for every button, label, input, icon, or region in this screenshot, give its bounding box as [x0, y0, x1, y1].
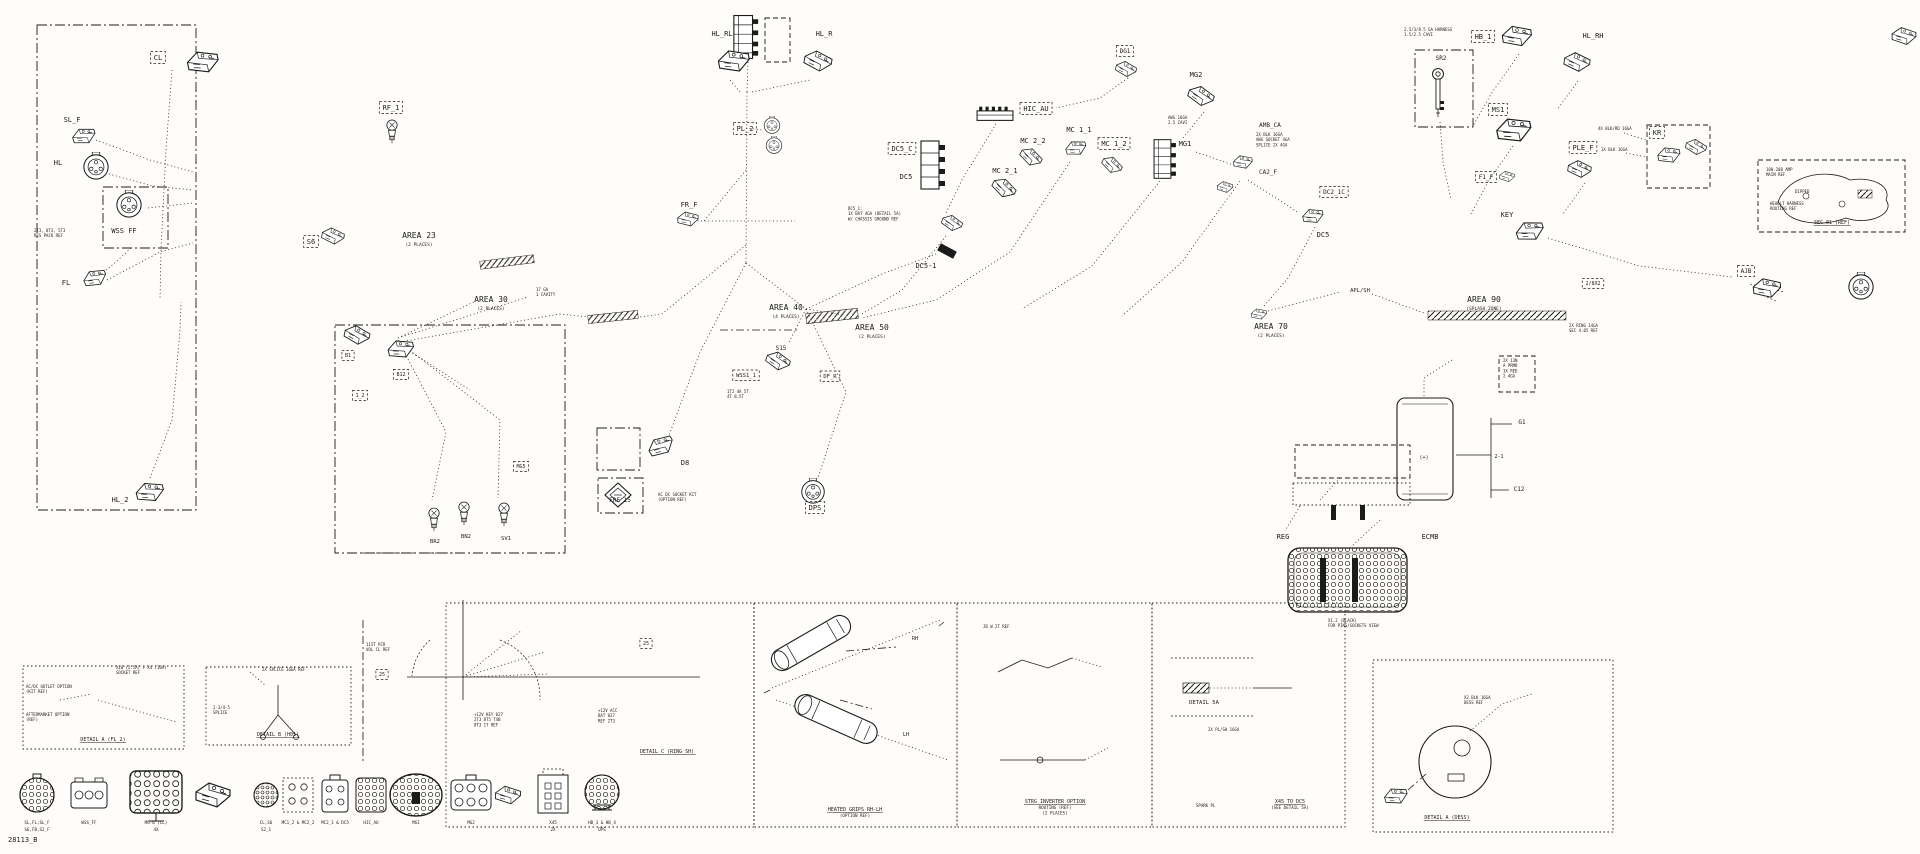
note-line: (KIT REF) [26, 689, 48, 694]
component-label: DF_R [823, 374, 837, 380]
note-line: SPLICE 2X 4GA [1256, 142, 1288, 147]
honeycomb-slot [1320, 558, 1326, 602]
bottom-connector-label: MG-6 (CL) [145, 820, 168, 825]
component-label: DETAIL 5A [1189, 700, 1219, 706]
component-label: KR [1653, 129, 1662, 137]
area-label: AREA 90 [1467, 295, 1501, 304]
diagram-svg: CLSL_FHLWSS FFFLHL_2RF_1S6HL_RLHL_RPL_2F… [0, 0, 1920, 854]
component-label: AJB [1741, 268, 1752, 275]
note-line: VOL CL REF [366, 647, 391, 652]
detail-caption: SEC 01 (REF) [1814, 220, 1850, 226]
component-label: SV1 [501, 536, 511, 542]
note-line: SEC 4.05 REF [1569, 328, 1598, 333]
bottom-connector-item: SL,FL,SL_FS6,FB,S2_F [20, 774, 54, 832]
component-label: AMB_CA [1259, 122, 1281, 129]
component-label: HL [54, 159, 62, 167]
component-label: G1 [1518, 419, 1526, 426]
area-sublabel: (2 PLACES) [1257, 333, 1284, 339]
component-label: HL_2 [112, 496, 129, 504]
component-label: MC 2_2 [1020, 137, 1045, 145]
component-label: CL [154, 54, 162, 62]
area-sublabel: (2 PLACES) [858, 334, 885, 340]
detail-caption: DETAIL A (DESS) [1424, 815, 1469, 821]
ecm-pin [1331, 505, 1336, 520]
sketch-detail [1858, 190, 1872, 198]
component-label: S6 [307, 238, 315, 246]
component-label: MC 1_2 [1101, 140, 1126, 148]
component-label: WSS FF [111, 227, 136, 235]
component-label: 25 [379, 672, 385, 678]
caption-subline: ROUTING (REF) [1039, 805, 1072, 810]
wiring-diagram-canvas: CLSL_FHLWSS FFFLHL_2RF_1S6HL_RLHL_RPL_2F… [0, 0, 1920, 854]
honeycomb-connector-icon [1288, 548, 1407, 612]
note-line: REF 2T3 [598, 718, 615, 723]
component-label: HL_RL [711, 30, 732, 38]
component-label: APL/SH [1350, 288, 1370, 294]
component-label: SL_F [64, 116, 81, 124]
note-line: 2X SPLICE 16GA REF [262, 667, 306, 672]
component-label: HL_RH [1582, 32, 1603, 40]
component-label: MS1 [1492, 106, 1505, 114]
area-hatch-bar [1428, 311, 1566, 320]
component-label: HIC_AU [1023, 105, 1048, 113]
component-label: HL_R [816, 30, 834, 38]
note-line: DIPPED [1795, 189, 1810, 194]
note-line: 4T 8.5T [727, 394, 744, 399]
area-sublabel: (4 PLACES) [772, 314, 799, 320]
component-label: S15 [776, 345, 787, 352]
note-line: SPLICE [213, 710, 228, 715]
bottom-connector-label: X45 [549, 820, 557, 825]
note-line: SOCKET REF [116, 670, 141, 675]
area-label: AREA 23 [402, 231, 436, 240]
detail-caption: DETAIL A (FL_2) [80, 737, 125, 743]
bottom-connector-label: MC2_1 & DC5 [321, 820, 349, 825]
area-sublabel: (SPLASH ZONE) [1466, 306, 1501, 312]
component-label: 2/8X2 [1585, 281, 1600, 287]
area-label: AREA 70 [1254, 322, 1288, 331]
component-label: C12 [1514, 486, 1525, 493]
bottom-connector-label: MG1 [412, 820, 420, 825]
component-label: RH [912, 636, 918, 642]
component-label: DC5-1 [915, 262, 936, 270]
bottom-connector-label: HIC_AU [363, 820, 379, 825]
component-label: DC2_1C [1323, 189, 1345, 196]
component-label: DG1 [1120, 48, 1131, 55]
area-sublabel: (2 PLACES) [405, 242, 432, 248]
component-label: B12 [396, 372, 405, 378]
detail-5a-chip [1183, 683, 1209, 693]
note-line: (OPTION REF) [658, 497, 687, 502]
bottom-connector-label2: 4X [153, 827, 159, 832]
detail-caption: DETAIL C (RING SH) [640, 749, 694, 755]
component-label: PLE_F [1572, 144, 1593, 152]
note-line: 1X BLK 16GA [1601, 147, 1628, 152]
component-label: DC5_C [891, 145, 912, 153]
component-label: 2-1 [1494, 454, 1503, 460]
note-line: 4X BLK/RD 16GA [1598, 126, 1632, 131]
note-line: DESS REF [1464, 700, 1484, 705]
component-label: SR2 [1436, 55, 1447, 62]
component-label: FL [62, 279, 70, 287]
component-label: F1_F [1479, 174, 1494, 181]
caption-subline: (2 PLACES) [1042, 811, 1067, 816]
component-label: 25 [643, 641, 649, 647]
component-label: PL_2 [737, 125, 754, 133]
note-line: SPARK PL [1196, 803, 1216, 808]
note-line: (REF) [26, 717, 38, 722]
area-label: AREA 50 [855, 323, 889, 332]
component-label: WSS1_1 [736, 373, 756, 379]
component-label: DC5 [900, 173, 913, 181]
bottom-connector-item: HB_3 & HB_4DPS [585, 775, 619, 832]
bottom-connector-label2: DPS [598, 827, 606, 832]
ecm-pin [1360, 505, 1365, 520]
component-label: REG [1277, 533, 1290, 541]
bottom-connector-label: MC1_2 & MC2_2 [282, 820, 315, 825]
component-label: KEY [1501, 211, 1514, 219]
caption-subline: (SEE DETAIL 5A) [1271, 805, 1309, 810]
component-label: FR_F [681, 201, 698, 209]
note-line: JB W 2T REF [983, 624, 1010, 629]
bottom-connector-label2: S6,FB,S2_F [24, 827, 50, 832]
note-line: 8T3 1T REF [474, 722, 499, 727]
component-label: BN2 [461, 534, 471, 540]
component-label: MC 2_1 [992, 167, 1017, 175]
component-label: D8 [681, 459, 689, 467]
note-line: W/ CHASSIS GROUND REF [848, 216, 899, 221]
bottom-connector-label: MG2 [467, 820, 475, 825]
component-label: RF_1 [383, 104, 400, 112]
component-label: MG1 [1179, 140, 1192, 148]
bottom-connector-label2: S2_1 [261, 827, 272, 832]
component-label: B1 [345, 353, 351, 359]
bottom-connector-label: CL,S6 [260, 820, 273, 825]
note-line: ROUTING REF [1770, 206, 1797, 211]
component-label: HB_1 [1475, 33, 1492, 41]
bottom-connector-label: HB_3 & HB_4 [588, 820, 616, 825]
note-line: MAIN REF [1766, 172, 1786, 177]
component-label: MG2 [1190, 71, 1203, 79]
detail-caption: DETAIL B (H05) [257, 732, 299, 738]
area-label: AREA 30 [474, 295, 508, 304]
sheet-number: 28113_B [8, 836, 38, 844]
component-label: MG5 [516, 464, 525, 470]
component-label: DC5 [1317, 231, 1330, 239]
note-line: 1.5/2.5 CAVI [1404, 32, 1433, 37]
component-label: LH [903, 732, 909, 738]
note-line: 2 4GA [1503, 374, 1516, 379]
component-label: DPS [809, 504, 822, 512]
component-label: (+) [1419, 455, 1428, 461]
bottom-connector-label2: 2X [550, 827, 556, 832]
note-line: 2X PL/SH 16GA [1208, 727, 1240, 732]
component-label: FRE_15 [609, 497, 631, 504]
bottom-connector-label: WSS_FF [81, 820, 97, 825]
component-label: ECMB [1422, 533, 1439, 541]
component-label: MC 1_1 [1066, 126, 1091, 134]
component-label: CA2_F [1259, 169, 1277, 176]
note-line: 2.5 CAVI [1168, 120, 1188, 125]
component-label: 1_2 [355, 393, 364, 399]
component-label: BR2 [430, 539, 440, 545]
honeycomb-slot [1352, 558, 1358, 602]
area-sublabel: (2 PLACES) [477, 306, 504, 312]
bottom-connector-label: SL,FL,SL_F [24, 820, 50, 825]
note-line: RES PACK REF [34, 233, 63, 238]
note-line: 1 CAVITY [536, 292, 556, 297]
caption-subline: (OPTION REF) [840, 813, 870, 818]
area-label: AREA 40 [769, 303, 803, 312]
note-line: FOR PINS/SOCKETS VIEW [1328, 623, 1379, 628]
